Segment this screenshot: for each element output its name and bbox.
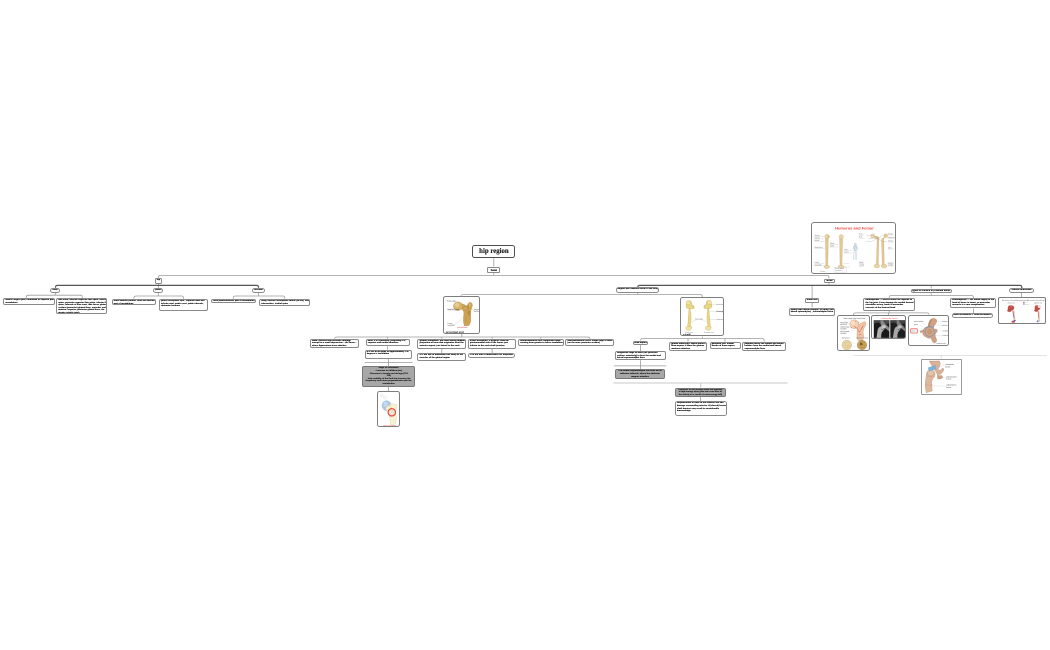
svg-text:Post. muscles of hip and thigh: Post. muscles of hip and thigh (origin)	[1027, 299, 1047, 302]
svg-text:groove: groove	[914, 322, 918, 325]
svg-text:condyle: condyle	[859, 265, 864, 267]
svg-text:proximal femur: proximal femur	[458, 326, 469, 329]
svg-text:Linea: Linea	[844, 249, 848, 251]
svg-text:supracondylar: supracondylar	[717, 318, 725, 321]
svg-text:Greater: Greater	[888, 233, 894, 236]
svg-text:ischial spine: ischial spine	[942, 334, 949, 336]
svg-text:iliopubic emin.: iliopubic emin.	[942, 321, 949, 323]
svg-text:Posterior view: Posterior view	[704, 331, 715, 334]
svg-text:Normal bone: Normal bone	[842, 337, 850, 340]
svg-text:acetabular notch: acetabular notch	[936, 341, 946, 344]
svg-text:Lateral: Lateral	[888, 261, 893, 264]
svg-text:condyle: condyle	[888, 265, 893, 267]
svg-text:Medial: Medial	[859, 262, 864, 264]
svg-text:back: back	[1035, 323, 1038, 324]
svg-text:blood supply of the femoral he: blood supply of the femoral head	[844, 317, 866, 320]
svg-text:Fovea capitis: Fovea capitis	[447, 299, 457, 302]
svg-text:supra acetabular: supra acetabular	[914, 320, 924, 323]
svg-text:head of femur: head of femur	[448, 308, 460, 311]
svg-text:lesser trochanter: lesser trochanter	[717, 303, 725, 306]
svg-text:proximal end: proximal end	[446, 330, 464, 334]
svg-text:intracapsular: intracapsular	[946, 363, 955, 366]
svg-text:Humerus and Femur: Humerus and Femur	[835, 225, 874, 230]
svg-text:medial femoral: medial femoral	[840, 326, 850, 329]
svg-text:Shaft: Shaft	[888, 247, 892, 250]
svg-text:acetabular fossa: acetabular fossa	[943, 329, 949, 332]
svg-text:epicondyles: epicondyles	[835, 270, 843, 272]
svg-text:Gluteal: Gluteal	[888, 240, 893, 243]
svg-text:epicondyle: epicondyle	[815, 264, 822, 266]
svg-text:Greater: Greater	[474, 308, 480, 311]
svg-text:Neck: Neck	[859, 237, 863, 239]
svg-text:linea aspera: linea aspera	[717, 311, 725, 313]
svg-text:subtrochanteric: subtrochanteric	[946, 383, 956, 386]
svg-text:Trochlea: Trochlea	[820, 270, 826, 273]
svg-text:Lesser: Lesser	[448, 322, 453, 325]
svg-text:front: front	[1009, 322, 1012, 324]
svg-text:Greater: Greater	[815, 234, 821, 237]
svg-text:angle of inclination: angle of inclination	[383, 424, 396, 427]
svg-text:linea aspera: linea aspera	[695, 318, 703, 321]
svg-text:Medial: Medial	[830, 243, 835, 245]
svg-text:articular surf.: articular surf.	[942, 324, 949, 327]
svg-text:Radial fossa: Radial fossa	[815, 247, 823, 249]
svg-text:intracapsular fracture: intracapsular fracture	[882, 317, 898, 320]
svg-text:intertrochanteric: intertrochanteric	[946, 375, 957, 378]
svg-text:Ant. muscles of hip and thigh: Ant. muscles of hip and thigh (origin/in…	[1002, 299, 1029, 302]
svg-text:trochanter: trochanter	[888, 236, 895, 239]
svg-text:Head: Head	[859, 234, 863, 236]
svg-text:artery of liga-: artery of liga-	[840, 321, 849, 324]
svg-text:Lateral: Lateral	[815, 261, 820, 264]
svg-text:shaft: shaft	[683, 333, 692, 336]
